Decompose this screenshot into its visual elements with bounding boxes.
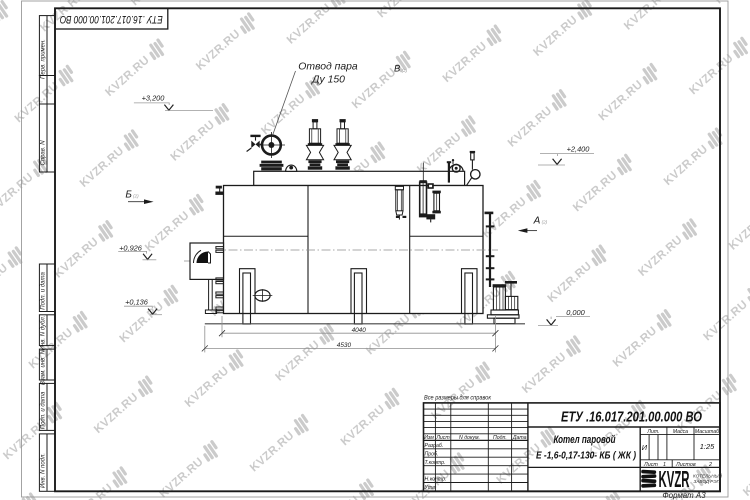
svg-text:Масса: Масса	[673, 429, 688, 435]
svg-text:Взам. инв. N: Взам. инв. N	[41, 349, 47, 385]
svg-text:Инв. N подл.: Инв. N подл.	[41, 453, 47, 488]
svg-text:Е -1,6-0,17-130- КБ ( ЖК ): Е -1,6-0,17-130- КБ ( ЖК )	[536, 450, 637, 461]
svg-text:4530: 4530	[337, 342, 352, 349]
svg-text:КОТЕЛЬНЫЙ: КОТЕЛЬНЫЙ	[693, 471, 723, 478]
svg-text:(2): (2)	[133, 194, 139, 199]
svg-text:Т.контр.: Т.контр.	[425, 460, 446, 466]
svg-text:Лит.: Лит.	[646, 429, 659, 435]
svg-text:Справ. N: Справ. N	[41, 140, 47, 166]
svg-text:Масштаб: Масштаб	[695, 429, 720, 435]
svg-text:ЕТУ .16.017.201.00.000 ВО: ЕТУ .16.017.201.00.000 ВО	[561, 409, 702, 426]
svg-text:Лист: Лист	[643, 462, 658, 468]
svg-text:Подп. и дата: Подп. и дата	[41, 272, 47, 310]
svg-text:Изм: Изм	[424, 435, 434, 441]
svg-text:ЕТУ .16.017.201.00.000 ВО: ЕТУ .16.017.201.00.000 ВО	[60, 13, 163, 25]
svg-text:А: А	[533, 215, 541, 226]
svg-text:2: 2	[708, 462, 712, 468]
svg-text:ЗАВОД РЭП: ЗАВОД РЭП	[694, 479, 721, 484]
svg-text:Подп.: Подп.	[493, 435, 507, 441]
svg-text:Перв. примен.: Перв. примен.	[41, 39, 47, 79]
svg-text:KVZR: KVZR	[659, 466, 690, 492]
svg-text:N докум.: N докум.	[459, 435, 480, 441]
svg-text:0,000: 0,000	[566, 308, 585, 317]
svg-text:Н.контр.: Н.контр.	[425, 477, 447, 483]
svg-text:Б: Б	[125, 189, 132, 200]
svg-text:+3,200: +3,200	[142, 94, 166, 103]
svg-text:+0,136: +0,136	[125, 297, 149, 306]
svg-text:Формат А3: Формат А3	[662, 491, 706, 500]
svg-text:Утв.: Утв.	[425, 485, 437, 491]
svg-text:Лист: Лист	[435, 435, 450, 441]
svg-text:1:25: 1:25	[700, 442, 715, 451]
svg-text:Проб.: Проб.	[425, 451, 439, 457]
svg-text:Дата: Дата	[512, 435, 527, 441]
svg-text:Ду 150: Ду 150	[311, 74, 345, 85]
svg-text:4040: 4040	[352, 327, 367, 334]
svg-text:В: В	[394, 63, 400, 74]
svg-text:Разраб.: Разраб.	[425, 443, 444, 449]
svg-text:Котел паровой: Котел паровой	[554, 434, 616, 446]
svg-text:Все размеры для справок: Все размеры для справок	[424, 393, 492, 401]
svg-text:(2): (2)	[402, 68, 408, 73]
svg-text:И: И	[642, 443, 648, 452]
svg-text:+2,400: +2,400	[567, 145, 591, 154]
svg-text:(2): (2)	[542, 220, 548, 225]
svg-text:Отвод пара: Отвод пара	[298, 61, 358, 72]
svg-text:Инв. N дубл.: Инв. N дубл.	[41, 316, 47, 351]
svg-text:Подп. и дата: Подп. и дата	[41, 391, 47, 429]
